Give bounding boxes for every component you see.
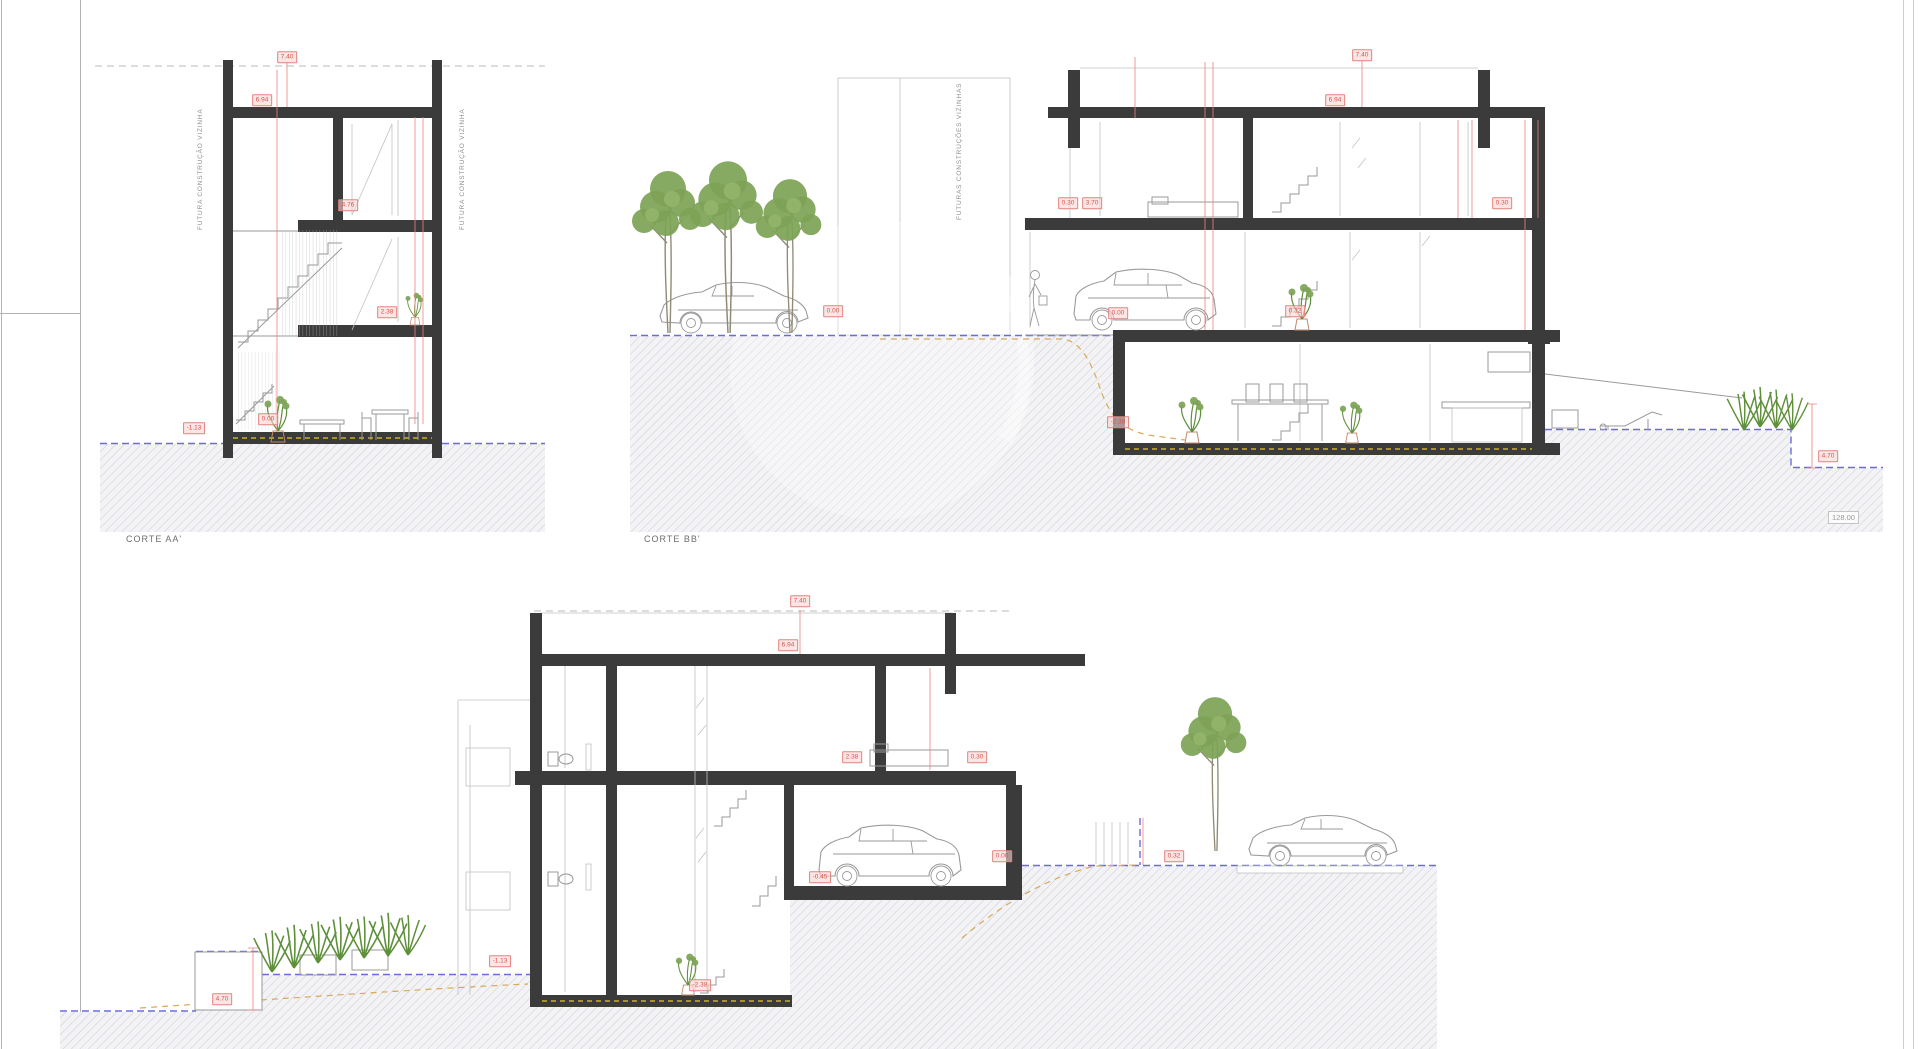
dimension-chip: 0.32: [1285, 305, 1305, 317]
neighbour-construction-note: FUTURAS CONSTRUÇÕES VIZINHAS: [956, 72, 963, 220]
dimension-chip: 0.30: [967, 751, 987, 763]
dimension-chip: 2.38: [377, 306, 397, 318]
dimension-chip: 7.40: [1352, 49, 1372, 61]
dimension-chip: -1.13: [183, 422, 205, 434]
dimension-chip: 0.00: [823, 305, 843, 317]
dimension-chip: 6.94: [778, 639, 798, 651]
dimension-chip: 0.00: [258, 413, 278, 425]
dimension-chip: 6.94: [1325, 94, 1345, 106]
dimension-chip: -2.38: [1107, 416, 1129, 428]
neighbour-construction-note: FUTURA CONSTRUÇÃO VIZINHA: [197, 90, 204, 230]
label-corte-bb: CORTE BB': [644, 534, 701, 544]
architectural-sections-sheet: CORTE AA' CORTE BB' 128.00 FUTURA CONSTR…: [0, 0, 1920, 1049]
dimension-chip: 0.00: [1108, 307, 1128, 319]
dimension-chip: 3.70: [1082, 197, 1102, 209]
dimension-chip: 7.40: [277, 51, 297, 63]
dimension-chip: 0.32: [1164, 850, 1184, 862]
dimension-chip: 4.76: [338, 199, 358, 211]
dimension-chip: -0.45: [809, 871, 831, 883]
dimension-chip: 0.00: [992, 850, 1012, 862]
corte-aa-drawing: [95, 60, 545, 532]
dimension-chip: 2.38: [842, 751, 862, 763]
dimension-chip: 7.40: [790, 595, 810, 607]
dimension-chip: -1.13: [489, 955, 511, 967]
dimension-chip: 4.70: [1818, 450, 1838, 462]
dimension-chip: 0.30: [1058, 197, 1078, 209]
dimension-chip: 6.94: [252, 94, 272, 106]
neighbour-construction-note: FUTURA CONSTRUÇÃO VIZINHA: [459, 90, 466, 230]
elevation-note: 128.00: [1828, 511, 1859, 524]
dimension-chip: 4.70: [212, 993, 232, 1005]
corte-cc-drawing: [60, 610, 1437, 1049]
corte-bb-drawing: [630, 57, 1883, 532]
dimension-chip: -2.38: [689, 979, 711, 991]
label-corte-aa: CORTE AA': [126, 534, 182, 544]
dimension-chip: 0.30: [1492, 197, 1512, 209]
